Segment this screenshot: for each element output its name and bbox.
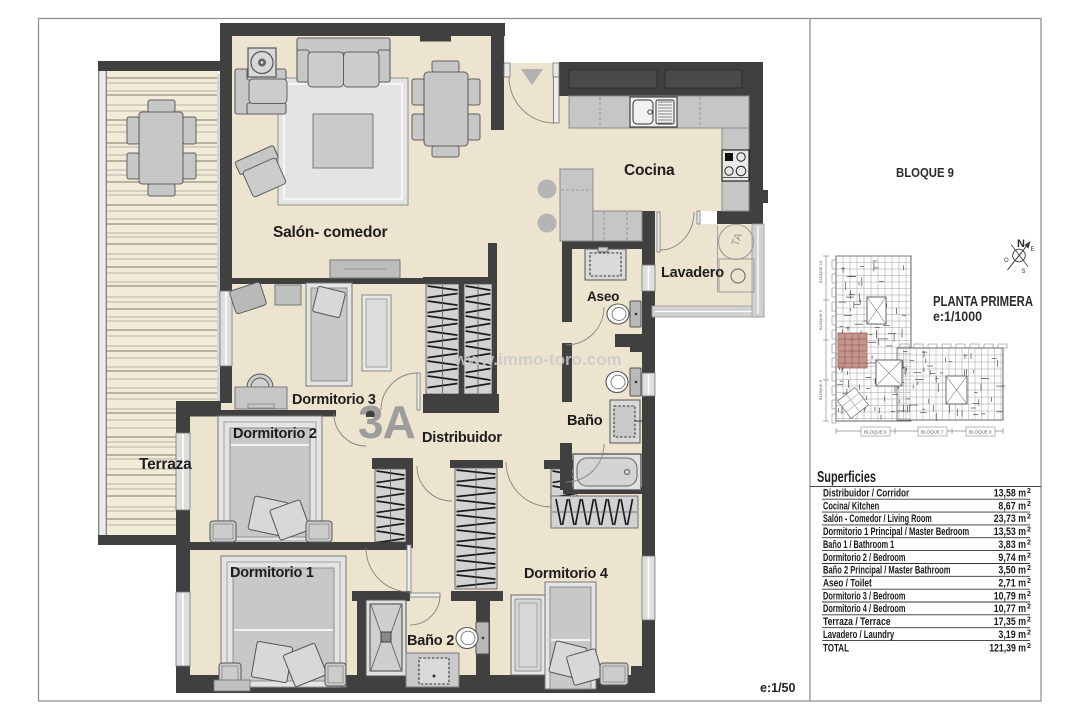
- svg-text:E: E: [1031, 247, 1035, 253]
- svg-text:Dormitorio 1: Dormitorio 1: [230, 565, 314, 581]
- svg-text:Aseo / Toilet: Aseo / Toilet: [823, 578, 872, 590]
- svg-text:Baño 1 / Bathroom 1: Baño 1 / Bathroom 1: [823, 539, 894, 551]
- svg-text:2: 2: [1027, 514, 1031, 521]
- svg-text:Cocina: Cocina: [624, 162, 675, 179]
- svg-text:BLOQUE 8: BLOQUE 8: [969, 430, 992, 435]
- svg-text:3,19 m: 3,19 m: [998, 629, 1026, 641]
- svg-text:Terraza: Terraza: [139, 456, 192, 473]
- svg-text:BLOQUE 9: BLOQUE 9: [818, 309, 823, 330]
- svg-text:2: 2: [1027, 629, 1031, 636]
- svg-text:N: N: [1017, 238, 1025, 250]
- svg-text:2: 2: [1027, 501, 1031, 508]
- svg-text:13,58 m: 13,58 m: [994, 488, 1026, 500]
- svg-text:BLOQUE 9: BLOQUE 9: [896, 165, 954, 180]
- svg-text:2: 2: [1027, 565, 1031, 572]
- svg-text:17,35 m: 17,35 m: [994, 616, 1026, 628]
- svg-text:e:1/1000: e:1/1000: [933, 309, 982, 324]
- svg-text:2: 2: [1027, 604, 1031, 611]
- svg-text:Dormitorio 4 / Bedroom: Dormitorio 4 / Bedroom: [823, 603, 906, 615]
- svg-text:13,53 m: 13,53 m: [994, 526, 1026, 538]
- svg-text:Superficies: Superficies: [817, 469, 876, 486]
- svg-text:Dormitorio 2 / Bedroom: Dormitorio 2 / Bedroom: [823, 552, 906, 564]
- svg-text:BLOQUE 7: BLOQUE 7: [921, 430, 944, 435]
- svg-text:2: 2: [1027, 591, 1031, 598]
- svg-text:Baño 2: Baño 2: [407, 633, 454, 649]
- svg-text:3,83 m: 3,83 m: [998, 539, 1026, 551]
- svg-text:www.immo-toro.com: www.immo-toro.com: [453, 350, 622, 369]
- svg-text:Lavadero: Lavadero: [661, 265, 724, 281]
- svg-text:e:1/50: e:1/50: [760, 681, 795, 695]
- svg-text:2: 2: [1027, 617, 1031, 624]
- svg-text:Salón- comedor: Salón- comedor: [273, 224, 387, 241]
- svg-text:S: S: [1022, 269, 1026, 275]
- svg-text:Salón - Comedor / Living Room: Salón - Comedor / Living Room: [823, 513, 932, 525]
- svg-text:2: 2: [1027, 527, 1031, 534]
- svg-text:2: 2: [1027, 488, 1031, 495]
- svg-text:2: 2: [1027, 578, 1031, 585]
- svg-text:2: 2: [1027, 643, 1031, 650]
- svg-text:BLOQUE 9: BLOQUE 9: [818, 379, 823, 400]
- svg-text:9,74 m: 9,74 m: [998, 552, 1026, 564]
- svg-text:Terraza / Terrace: Terraza / Terrace: [823, 616, 891, 628]
- svg-text:Dormitorio 2: Dormitorio 2: [233, 426, 317, 442]
- svg-text:Baño: Baño: [567, 413, 603, 429]
- svg-text:Dormitorio 3: Dormitorio 3: [292, 392, 376, 408]
- svg-text:2: 2: [1027, 552, 1031, 559]
- svg-text:PLANTA PRIMERA: PLANTA PRIMERA: [933, 294, 1033, 310]
- svg-text:10,79 m: 10,79 m: [994, 590, 1026, 602]
- svg-text:3,50 m: 3,50 m: [998, 565, 1026, 577]
- svg-text:2,71 m: 2,71 m: [998, 578, 1026, 590]
- svg-text:Baño 2 Principal / Master Bath: Baño 2 Principal / Master Bathroom: [823, 565, 951, 577]
- svg-text:8,67 m: 8,67 m: [998, 500, 1026, 512]
- svg-text:TOTAL: TOTAL: [823, 643, 849, 655]
- svg-text:Dormitorio 3 / Bedroom: Dormitorio 3 / Bedroom: [823, 590, 906, 602]
- svg-text:10,77 m: 10,77 m: [994, 603, 1026, 615]
- svg-text:2: 2: [1027, 539, 1031, 546]
- svg-text:BLOQUE 6: BLOQUE 6: [864, 430, 887, 435]
- svg-text:Aseo: Aseo: [587, 289, 619, 304]
- svg-text:121,39 m: 121,39 m: [989, 643, 1026, 655]
- svg-text:Dormitorio 4: Dormitorio 4: [524, 566, 608, 582]
- svg-text:Cocina/ Kitchen: Cocina/ Kitchen: [823, 500, 879, 512]
- svg-text:Distribuidor / Corridor: Distribuidor / Corridor: [823, 488, 910, 500]
- svg-text:Distribuidor: Distribuidor: [422, 430, 502, 446]
- svg-text:Lavadero / Laundry: Lavadero / Laundry: [823, 629, 894, 641]
- svg-text:23,73 m: 23,73 m: [994, 513, 1026, 525]
- svg-text:Dormitorio 1 Principal / Maste: Dormitorio 1 Principal / Master Bedroom: [823, 526, 969, 538]
- svg-text:O: O: [1004, 258, 1009, 264]
- svg-text:BLOQUE 10: BLOQUE 10: [818, 260, 823, 283]
